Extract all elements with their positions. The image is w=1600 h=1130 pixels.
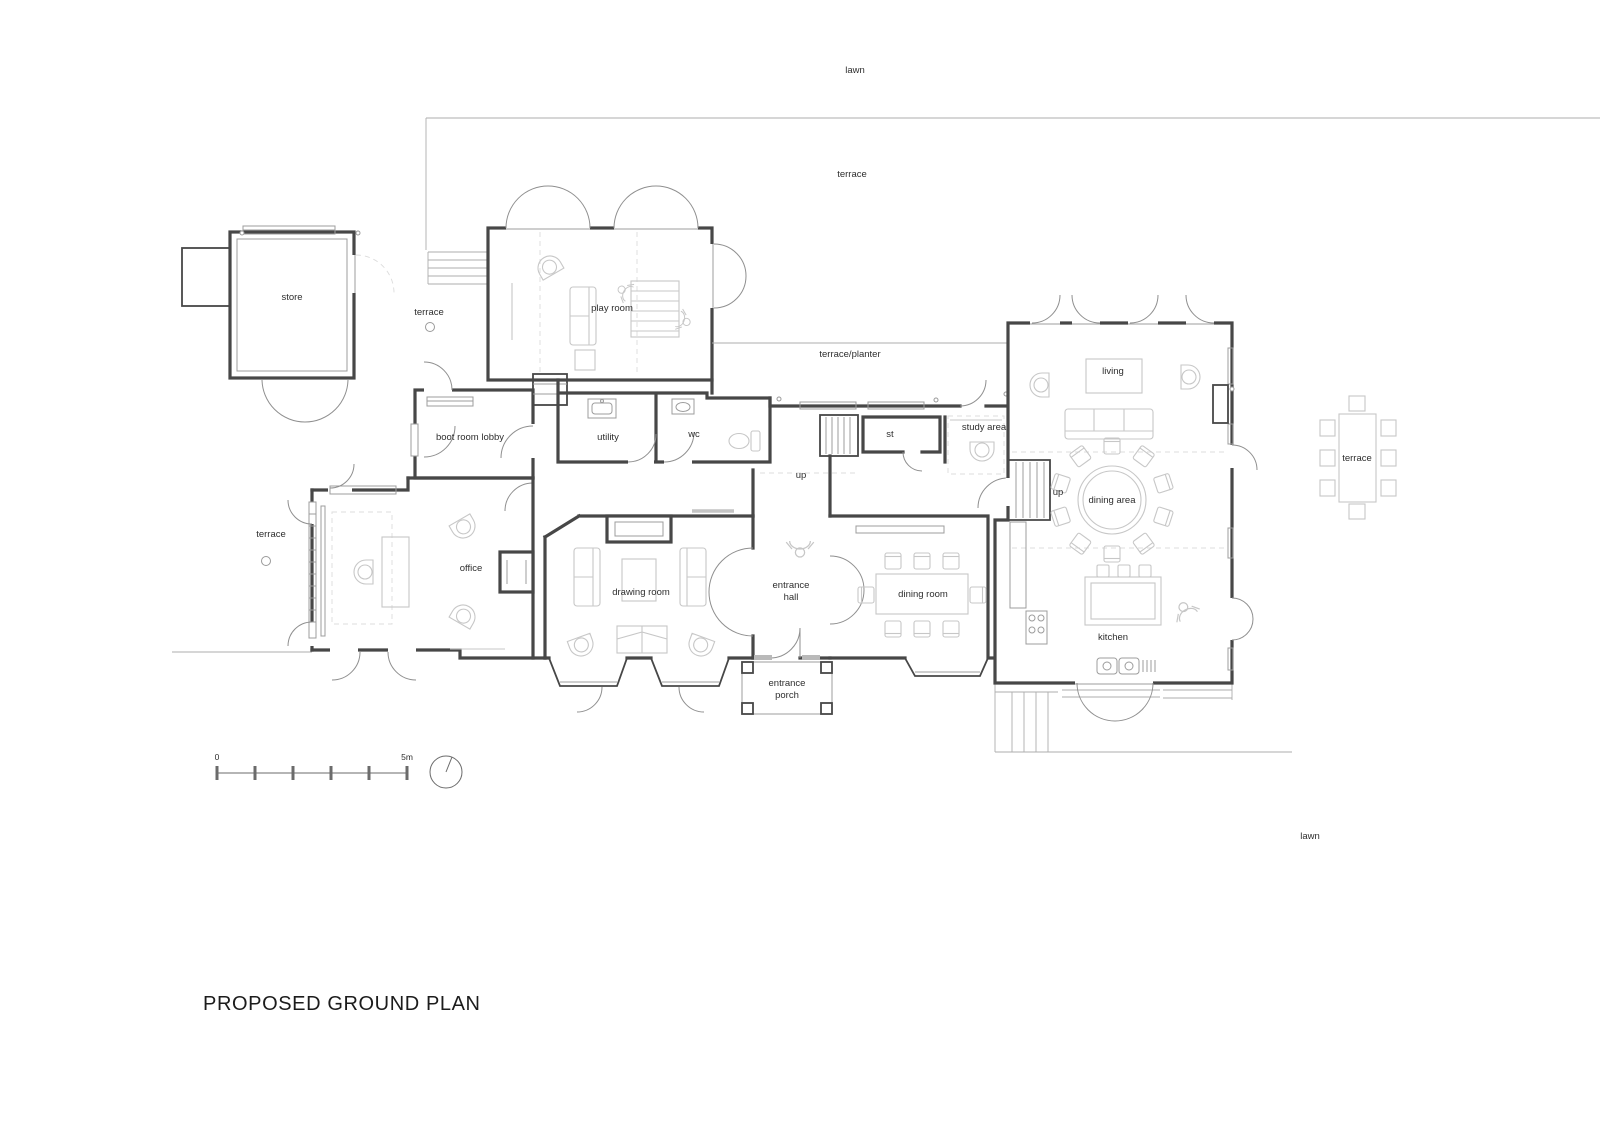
label-up-kitchen: up xyxy=(1053,487,1064,498)
dining-sideboard xyxy=(856,526,944,533)
bay-door-1 xyxy=(577,687,602,712)
room-utility xyxy=(558,380,770,462)
label-terrace-store: terrace xyxy=(414,307,444,318)
office-chimney xyxy=(500,552,533,592)
hall-dining-double-door xyxy=(830,556,864,624)
label-boot-room-lobby: boot room lobby xyxy=(436,432,504,443)
hall-corridor xyxy=(692,456,856,516)
play-room-french-door-2 xyxy=(614,186,698,228)
bay-door-2 xyxy=(679,687,704,712)
cupboard-st xyxy=(863,417,940,471)
label-entrance-porch-1: entrance xyxy=(769,678,806,689)
garden-room-door-left-bottom xyxy=(288,622,312,646)
label-st: st xyxy=(886,429,894,440)
label-terrace-right: terrace xyxy=(1342,453,1372,464)
garden-room-door-top xyxy=(330,464,354,488)
kitchen-terrace-double-door xyxy=(1077,683,1153,721)
bay-window-2 xyxy=(651,658,729,686)
play-room-side-door xyxy=(714,244,746,308)
room-wc xyxy=(664,399,760,462)
label-lawn-top: lawn xyxy=(845,65,865,76)
scale-zero-label: 0 xyxy=(215,752,220,762)
label-wc: wc xyxy=(687,429,700,440)
label-entrance-hall-2: hall xyxy=(784,592,799,603)
label-terrace-planter: terrace/planter xyxy=(819,349,880,360)
label-lawn-bottom: lawn xyxy=(1300,831,1320,842)
stairs-main xyxy=(820,415,858,456)
drawing-room-fireplace xyxy=(607,516,671,542)
garden-room-door-left-top xyxy=(288,500,312,524)
label-dining-room: dining room xyxy=(898,589,948,600)
label-dining-area: dining area xyxy=(1088,495,1136,506)
label-study-area: study area xyxy=(962,422,1007,433)
terrace-marker-store xyxy=(426,323,435,332)
label-drawing-room: drawing room xyxy=(612,587,670,598)
bay-window-1 xyxy=(549,658,627,686)
label-living: living xyxy=(1102,366,1124,377)
label-up-main: up xyxy=(796,470,807,481)
scale-bar: 0 5m xyxy=(215,752,413,780)
label-utility: utility xyxy=(597,432,619,443)
drawing-room-table xyxy=(617,626,667,653)
front-door xyxy=(770,628,800,658)
floor-plan-canvas: 0 5m PROPOSED GROUND PLAN lawnterracesto… xyxy=(0,0,1600,1130)
terrace-marker-left xyxy=(262,557,271,566)
room-store xyxy=(182,226,394,422)
north-arrow-icon xyxy=(430,756,462,788)
store-double-door xyxy=(262,379,348,422)
label-play-room: play room xyxy=(591,303,633,314)
office-terrace-door-1 xyxy=(332,652,360,680)
store-annex xyxy=(182,248,230,306)
wc-toilet xyxy=(729,431,760,451)
label-office: office xyxy=(460,563,483,574)
room-play-room xyxy=(488,186,746,380)
page-title: PROPOSED GROUND PLAN xyxy=(203,993,481,1015)
room-office xyxy=(288,464,545,680)
kitchen-island xyxy=(1085,577,1161,625)
scale-5m-label: 5m xyxy=(401,752,413,762)
link-door xyxy=(960,380,986,406)
kitchen-wing xyxy=(995,295,1257,721)
utility-sink xyxy=(588,399,616,418)
label-entrance-hall-1: entrance xyxy=(773,580,810,591)
drawing-room-double-door xyxy=(709,548,753,636)
label-entrance-porch-2: porch xyxy=(775,690,799,701)
label-store: store xyxy=(281,292,302,303)
utility-door xyxy=(628,434,656,462)
st-door xyxy=(903,452,922,471)
room-drawing-room xyxy=(545,516,753,712)
label-terrace-top: terrace xyxy=(837,169,867,180)
floor-plan-page: 0 5m PROPOSED GROUND PLAN lawnterracesto… xyxy=(0,0,1600,1130)
label-terrace-left: terrace xyxy=(256,529,286,540)
wc-basin xyxy=(672,399,694,414)
room-entrance-hall xyxy=(753,541,864,658)
office-terrace-door-2 xyxy=(388,652,416,680)
terrace-steps-kitchen xyxy=(995,682,1232,752)
office-desk xyxy=(382,537,409,607)
bay-window-dining xyxy=(905,658,988,676)
boot-room-exterior-door xyxy=(424,362,452,390)
terrace-steps-top xyxy=(428,252,492,284)
stairs-kitchen xyxy=(1010,460,1050,520)
play-room-french-door-1 xyxy=(506,186,590,228)
label-kitchen: kitchen xyxy=(1098,632,1128,643)
kitchen-side-double-door xyxy=(1232,598,1253,640)
